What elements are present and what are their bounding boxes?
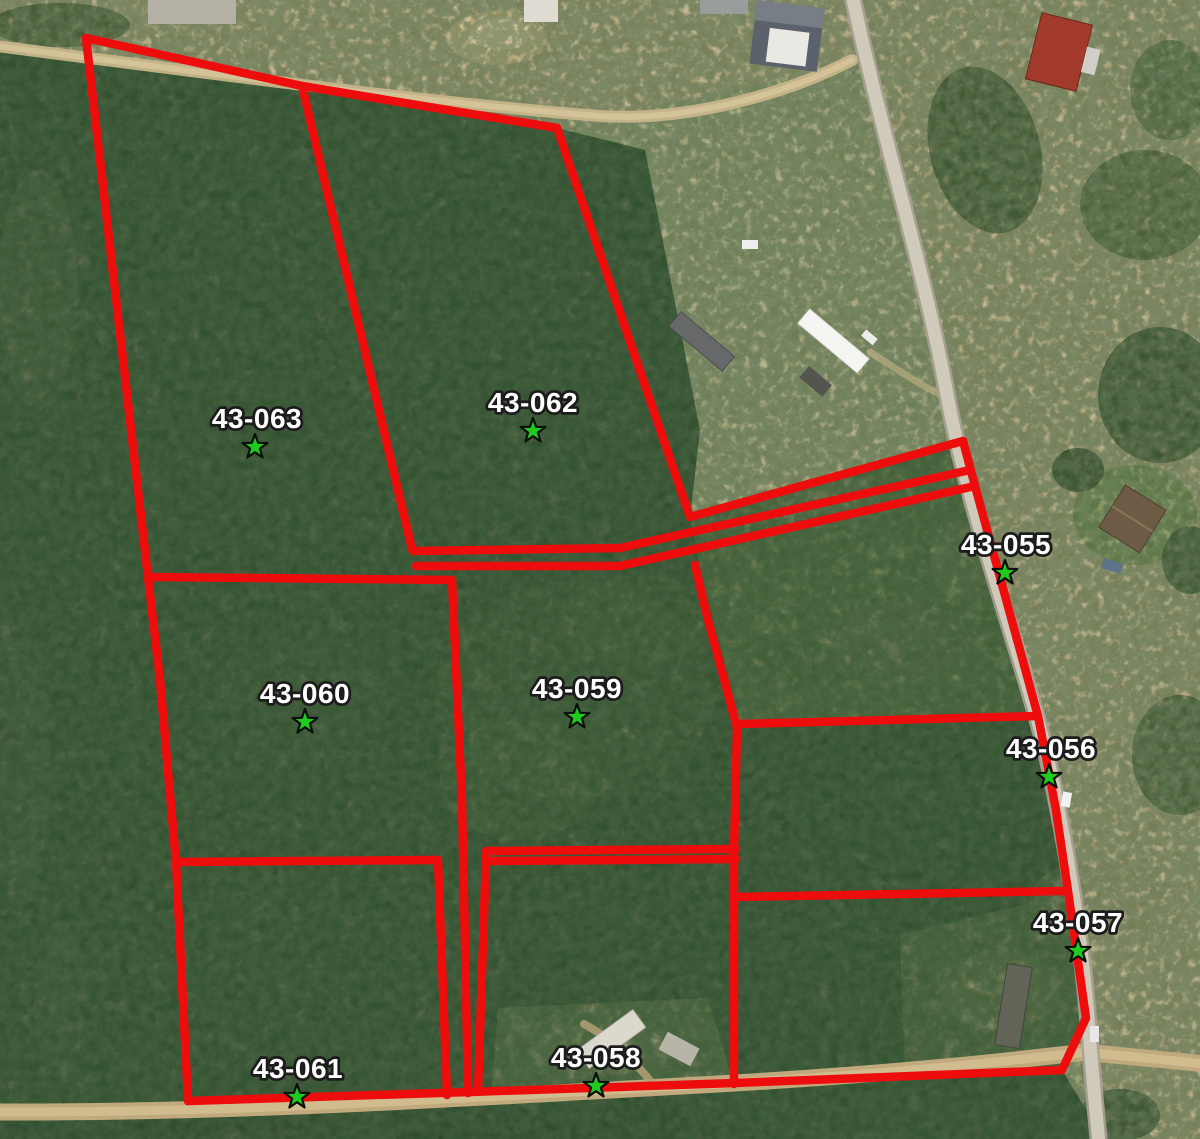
parcel-label: 43-063 — [212, 403, 302, 434]
parcel-boundary-58-east — [734, 727, 737, 1084]
aerial-map: 43-06343-06243-05543-06043-05943-05643-0… — [0, 0, 1200, 1139]
parcel-boundary-60-north — [148, 577, 452, 580]
parcel-boundary-58-north-a — [486, 849, 736, 851]
car-in-yard — [742, 240, 758, 249]
parcel-label: 43-055 — [961, 529, 1051, 560]
parcel-boundary-57-north — [736, 891, 1064, 897]
parcel-boundary-58-north-b — [490, 859, 736, 861]
vehicle-on-road — [1090, 1026, 1099, 1042]
barn-building — [749, 0, 824, 72]
parcel-label: 43-057 — [1033, 907, 1123, 938]
map-viewport: 43-06343-06243-05543-06043-05943-05643-0… — [0, 0, 1200, 1139]
white-roof-small — [524, 0, 558, 22]
barn-roof-white — [766, 28, 810, 67]
parcel-label: 43-059 — [532, 673, 622, 704]
parcel-label: 43-056 — [1006, 733, 1096, 764]
parcel-label: 43-060 — [260, 678, 350, 709]
parcel-label: 43-061 — [253, 1053, 343, 1084]
parcel-label: 43-058 — [551, 1042, 641, 1073]
parcel-label: 43-062 — [488, 387, 578, 418]
shed-top-center — [700, 0, 748, 14]
house-top-left — [148, 0, 236, 24]
